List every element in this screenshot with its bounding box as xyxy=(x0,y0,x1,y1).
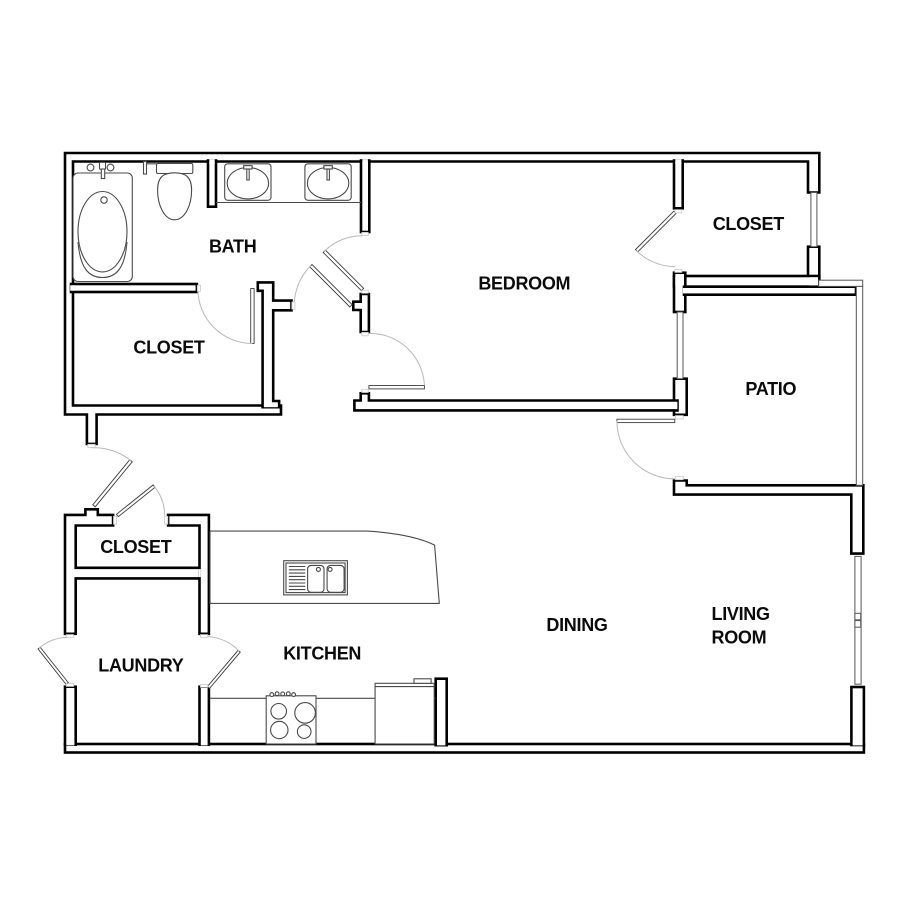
svg-text:DINING: DINING xyxy=(546,615,607,635)
svg-text:CLOSET: CLOSET xyxy=(713,214,785,234)
svg-text:BEDROOM: BEDROOM xyxy=(478,274,570,294)
svg-text:LIVING: LIVING xyxy=(712,604,770,624)
svg-text:ROOM: ROOM xyxy=(712,627,767,647)
svg-text:CLOSET: CLOSET xyxy=(133,338,205,358)
svg-text:BATH: BATH xyxy=(209,237,256,257)
svg-text:PATIO: PATIO xyxy=(745,379,796,399)
svg-text:KITCHEN: KITCHEN xyxy=(283,644,361,664)
svg-text:CLOSET: CLOSET xyxy=(100,537,172,557)
svg-text:LAUNDRY: LAUNDRY xyxy=(98,656,184,676)
